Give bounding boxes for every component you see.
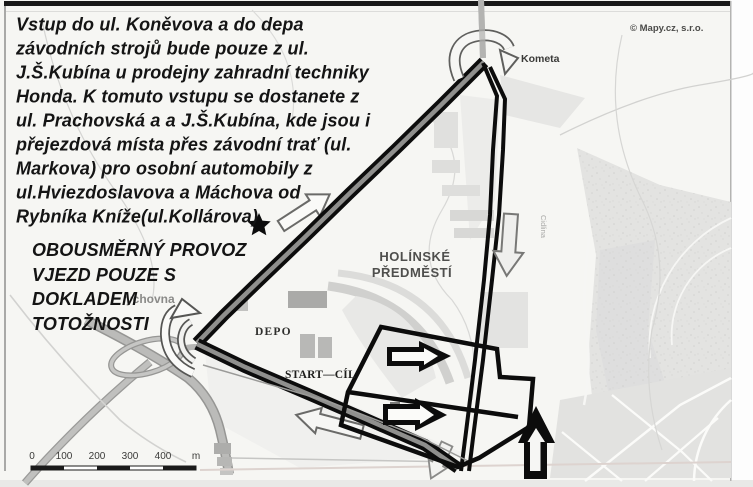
- svg-text:300: 300: [122, 451, 139, 462]
- svg-text:START—CÍL: START—CÍL: [285, 367, 356, 381]
- svg-text:ul.Hviezdoslavova a Máchova od: ul.Hviezdoslavova a Máchova od: [16, 183, 301, 203]
- svg-text:Honda. K tomuto vstupu se dost: Honda. K tomuto vstupu se dostanete z: [16, 87, 360, 107]
- svg-text:TOTOŽNOSTI: TOTOŽNOSTI: [32, 313, 150, 334]
- svg-text:200: 200: [89, 451, 106, 462]
- svg-text:ul. Prachovská a a J.Š.Kubína,: ul. Prachovská a a J.Š.Kubína, kde jsou …: [16, 110, 371, 131]
- svg-text:DEPO: DEPO: [255, 326, 292, 338]
- svg-text:VJEZD POUZE S: VJEZD POUZE S: [32, 265, 176, 285]
- svg-text:Markova) pro osobní automobily: Markova) pro osobní automobily z: [16, 159, 313, 179]
- svg-text:Kometa: Kometa: [521, 53, 560, 65]
- svg-text:OBOUSMĚRNÝ PROVOZ: OBOUSMĚRNÝ PROVOZ: [32, 239, 247, 260]
- svg-text:© Mapy.cz, s.r.o.: © Mapy.cz, s.r.o.: [630, 23, 703, 34]
- svg-text:závodních strojů bude pouze z: závodních strojů bude pouze z ul.: [15, 39, 309, 59]
- svg-text:J.Š.Kubína u prodejny zahradní: J.Š.Kubína u prodejny zahradní techniky: [16, 62, 370, 83]
- svg-text:DOKLADEM: DOKLADEM: [32, 289, 138, 309]
- svg-text:HOLÍNSKÉ: HOLÍNSKÉ: [379, 249, 450, 264]
- svg-text:Cidlina: Cidlina: [539, 215, 548, 239]
- svg-text:Vstup do ul. Koněvova a do dep: Vstup do ul. Koněvova a do depa: [16, 15, 304, 35]
- svg-text:přejezdová místa přes závodní: přejezdová místa přes závodní trať (ul.: [15, 135, 352, 155]
- svg-text:0: 0: [29, 451, 35, 462]
- svg-text:m: m: [192, 451, 200, 462]
- svg-text:Rybníka Kníže(ul.Kollárova): Rybníka Kníže(ul.Kollárova): [16, 207, 258, 227]
- svg-text:400: 400: [155, 451, 172, 462]
- svg-text:100: 100: [56, 451, 73, 462]
- svg-text:PŘEDMĚSTÍ: PŘEDMĚSTÍ: [372, 265, 452, 280]
